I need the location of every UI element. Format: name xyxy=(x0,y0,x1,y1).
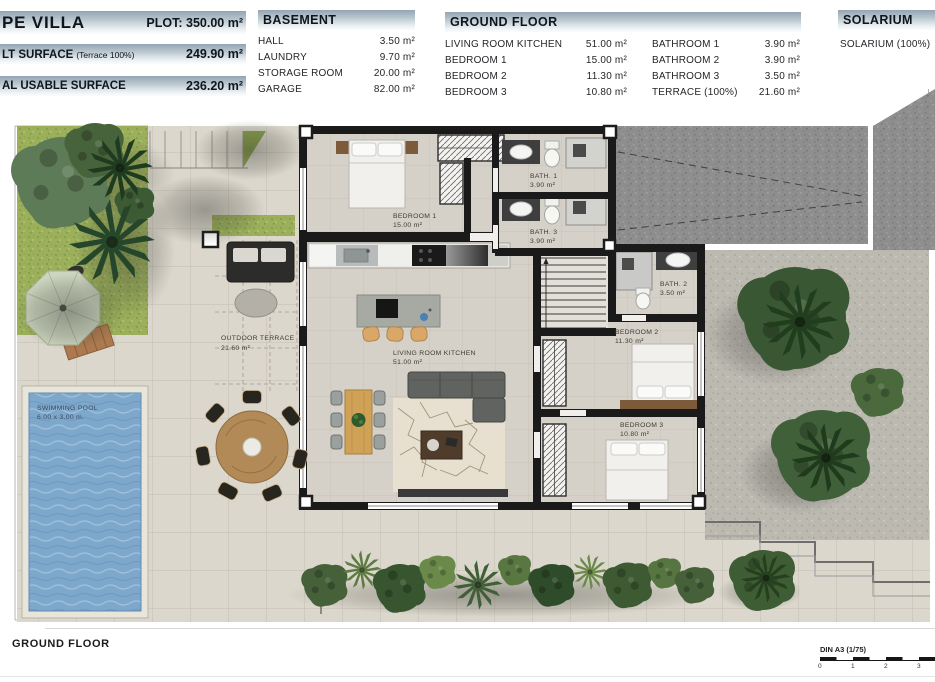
bath2-area: 3.50 m² xyxy=(660,290,686,297)
scale-tick: 2 xyxy=(884,663,888,670)
living-name: LIVING ROOM KITCHEN xyxy=(393,350,476,357)
usable-surface-bar: AL USABLE SURFACE 236.20 m² xyxy=(0,76,246,96)
tv-console xyxy=(398,489,508,497)
plot-size: PLOT: 350.00 m² xyxy=(146,16,243,30)
bed-3 xyxy=(606,440,668,500)
bedroom3-area: 10.80 m² xyxy=(620,431,650,438)
table-row: BATHROOM 33.50 m² xyxy=(652,68,800,84)
bed-2 xyxy=(620,344,700,410)
table-row: BEDROOM 310.80 m² xyxy=(445,84,627,100)
table-row: HALL3.50 m² xyxy=(258,33,415,49)
solarium-title: SOLARIUM xyxy=(843,13,913,27)
basement-table: HALL3.50 m² LAUNDRY9.70 m² STORAGE ROOM2… xyxy=(258,33,415,97)
pool-name: SWIMMING POOL xyxy=(37,405,98,412)
villa-title: PE VILLA xyxy=(2,13,85,33)
bath2-name: BATH. 2 xyxy=(660,281,687,288)
solarium-row: SOLARIUM (100%) xyxy=(840,36,935,52)
scale-caption: DIN A3 (1/75) xyxy=(820,645,866,654)
usable-surface-label: AL USABLE SURFACE xyxy=(2,80,126,92)
scale-tick: 1 xyxy=(851,663,855,670)
ground-floor-table-right: BATHROOM 13.90 m² BATHROOM 23.90 m² BATH… xyxy=(652,36,800,100)
floor-caption: GROUND FLOOR xyxy=(12,638,110,650)
bath1-area: 3.90 m² xyxy=(530,182,556,189)
terrace-name: OUTDOOR TERRACE xyxy=(221,335,295,342)
built-surface-bar: LT SURFACE(Terrace 100%) 249.90 m² xyxy=(0,44,246,64)
table-row: STORAGE ROOM20.00 m² xyxy=(258,65,415,81)
floorplan-page: { "title_block":{ "title":"PE VILLA", "p… xyxy=(0,0,935,682)
built-surface-value: 249.90 m² xyxy=(186,47,243,61)
table-row: LAUNDRY9.70 m² xyxy=(258,49,415,65)
bath1-name: BATH. 1 xyxy=(530,173,557,180)
ground-floor-table-left: LIVING ROOM KITCHEN51.00 m² BEDROOM 115.… xyxy=(445,36,627,100)
bedroom2-name: BEDROOM 2 xyxy=(615,329,659,336)
living-area: 51.00 m² xyxy=(393,359,423,366)
table-row: BATHROOM 13.90 m² xyxy=(652,36,800,52)
outdoor-sofa xyxy=(227,242,294,282)
table-row: GARAGE82.00 m² xyxy=(258,81,415,97)
scale-tick: 3 xyxy=(917,663,921,670)
kitchen-counter xyxy=(308,243,510,268)
terrace-area: 21.60 m² xyxy=(221,345,251,352)
basement-header: BASEMENT xyxy=(258,10,415,30)
coffee-table xyxy=(421,431,462,459)
bath-1-fixtures xyxy=(502,138,606,168)
bath3-name: BATH. 3 xyxy=(530,229,557,236)
bedroom2-area: 11.30 m² xyxy=(615,338,644,345)
scale-tick: 0 xyxy=(818,663,822,670)
bath3-area: 3.90 m² xyxy=(530,238,556,245)
built-surface-label: LT SURFACE xyxy=(2,49,73,61)
villa-title-bar: PE VILLA PLOT: 350.00 m² xyxy=(0,11,246,34)
bedroom1-area: 15.00 m² xyxy=(393,222,423,229)
basement-title: BASEMENT xyxy=(263,13,336,27)
driveway-ramp xyxy=(616,89,935,250)
table-row: BATHROOM 23.90 m² xyxy=(652,52,800,68)
dining-table xyxy=(331,390,385,454)
usable-surface-value: 236.20 m² xyxy=(186,79,243,93)
plan-bottom-rule xyxy=(45,628,935,629)
floor-plan-drawing: BEDROOM 1 15.00 m² BATH. 1 3.90 m² BATH.… xyxy=(0,0,935,682)
pool-size: 6.00 x 3.00 m. xyxy=(37,414,84,421)
scale-bar xyxy=(820,657,935,661)
solarium-header: SOLARIUM xyxy=(838,10,935,30)
table-row: LIVING ROOM KITCHEN51.00 m² xyxy=(445,36,627,52)
bath-3-fixtures xyxy=(502,195,606,225)
kitchen-island xyxy=(357,295,440,342)
bedroom1-name: BEDROOM 1 xyxy=(393,213,437,220)
built-surface-note: (Terrace 100%) xyxy=(76,50,134,60)
outdoor-pouf xyxy=(235,289,277,317)
ground-floor-title: GROUND FLOOR xyxy=(450,15,558,29)
table-row: TERRACE (100%)21.60 m² xyxy=(652,84,800,100)
table-row: BEDROOM 115.00 m² xyxy=(445,52,627,68)
staircase xyxy=(538,254,608,330)
table-row: BEDROOM 211.30 m² xyxy=(445,68,627,84)
ground-floor-header: GROUND FLOOR xyxy=(445,12,801,32)
page-bottom-rule xyxy=(0,676,935,677)
bedroom3-name: BEDROOM 3 xyxy=(620,422,664,429)
